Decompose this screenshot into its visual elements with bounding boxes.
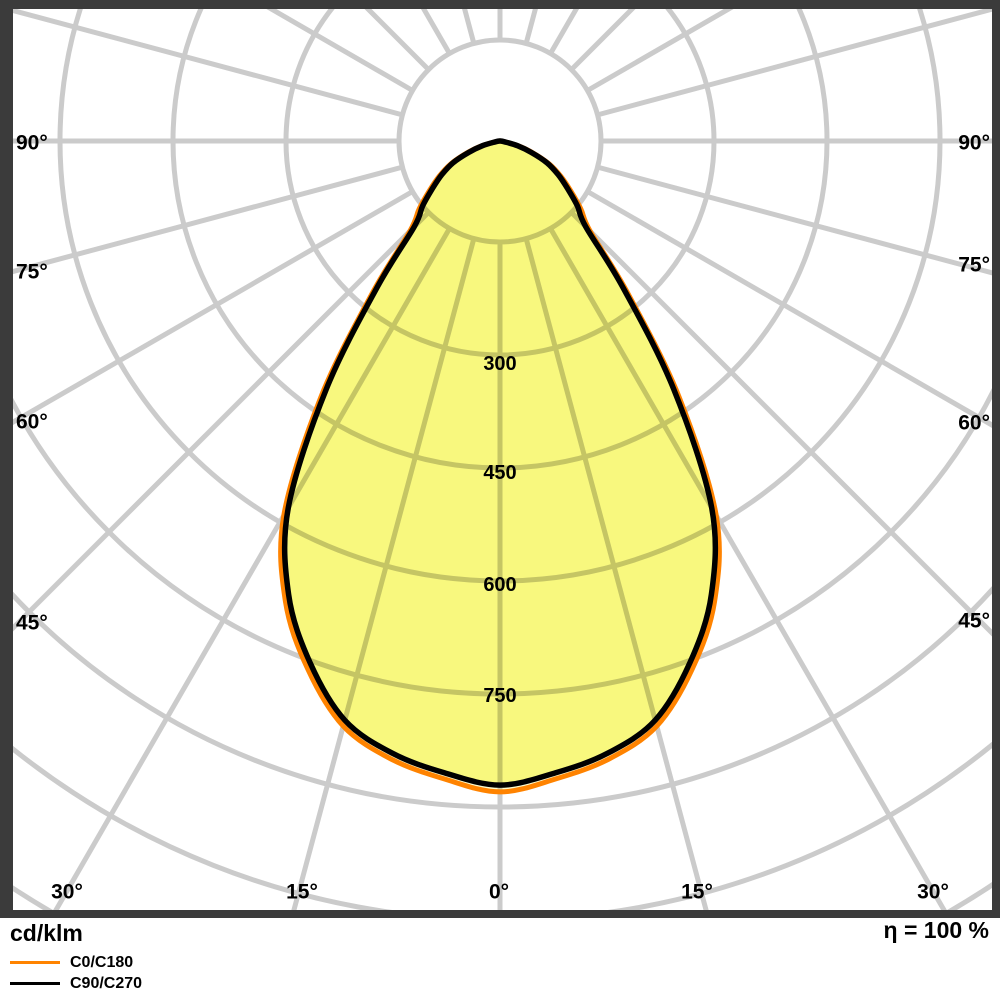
- radial-label-300: 300: [483, 354, 516, 374]
- polar-chart: [0, 0, 1000, 1000]
- angle-label-left-90: 90°: [16, 133, 48, 154]
- radial-label-750: 750: [483, 686, 516, 706]
- angle-label-left-75: 75°: [16, 262, 48, 283]
- legend-swatch-c90-c270: [10, 982, 60, 985]
- radial-label-450: 450: [483, 463, 516, 483]
- legend-swatch-c0-c180: [10, 961, 60, 964]
- angle-label-bottom-0: 0°: [489, 882, 509, 903]
- unit-label: cd/klm: [10, 922, 83, 945]
- angle-label-left-60: 60°: [16, 412, 48, 433]
- angle-label-bottom-right-30: 30°: [917, 882, 949, 903]
- legend-label-c90-c270: C90/C270: [70, 976, 142, 992]
- photometric-diagram: 90° 75° 60° 45° 90° 75° 60° 45° 30° 15° …: [0, 0, 1000, 1000]
- legend-label-c0-c180: C0/C180: [70, 955, 133, 971]
- angle-label-right-45: 45°: [958, 611, 990, 632]
- angle-label-right-90: 90°: [958, 133, 990, 154]
- radial-label-600: 600: [483, 575, 516, 595]
- angle-label-right-60: 60°: [958, 413, 990, 434]
- angle-label-left-45: 45°: [16, 613, 48, 634]
- angle-label-bottom-left-15: 15°: [286, 882, 318, 903]
- angle-label-bottom-left-30: 30°: [51, 882, 83, 903]
- efficiency-label: η = 100 %: [884, 919, 989, 942]
- angle-label-right-75: 75°: [958, 255, 990, 276]
- angle-label-bottom-right-15: 15°: [681, 882, 713, 903]
